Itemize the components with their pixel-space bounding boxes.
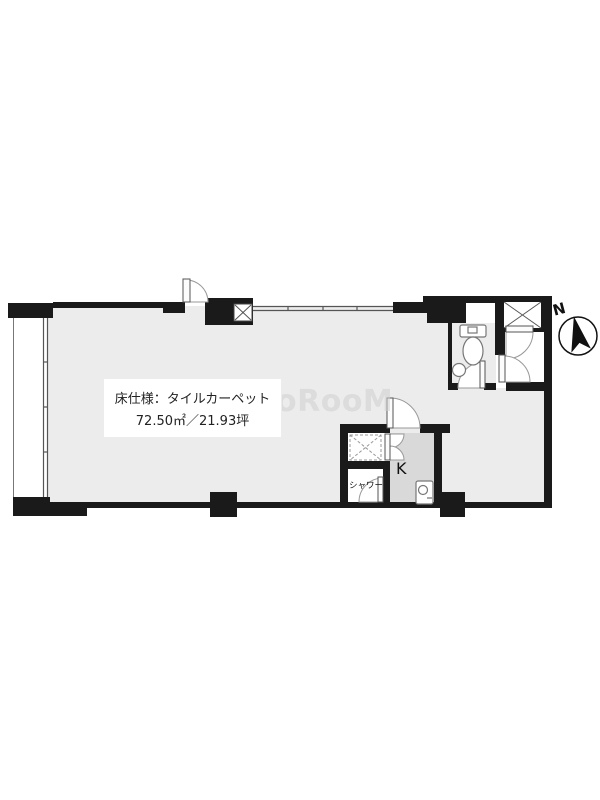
wall-right — [544, 296, 552, 508]
pillar-bottom-right — [440, 492, 465, 517]
watermark: oRooM — [276, 384, 393, 419]
wall-top-a — [53, 302, 163, 308]
hall-door-leaf — [506, 326, 533, 332]
pillar-bottom-mid — [210, 492, 237, 517]
entrance-door-leaf — [183, 279, 190, 302]
wall-toilet-left — [448, 323, 452, 383]
floorplan-image: N oRooM 床仕様：タイルカーペット 72.50㎡／21.93坪 シャワー … — [0, 0, 600, 800]
toilet-sink-icon — [453, 364, 466, 377]
shower-room-label: シャワー — [346, 479, 386, 491]
wall-kitchen-right — [434, 424, 442, 508]
north-compass-icon: N — [551, 299, 597, 355]
kitchen-room-label: K — [396, 459, 407, 478]
toilet-door-leaf — [480, 361, 485, 388]
wall-top-b — [393, 302, 427, 313]
spec-floor-area: 72.50㎡／21.93坪 — [136, 410, 249, 429]
wall-kitchen-top-a — [340, 424, 390, 433]
spec-label-box: 床仕様：タイルカーペット 72.50㎡／21.93坪 — [103, 378, 282, 438]
toilet-bowl-icon — [463, 337, 483, 365]
hall-exit-door-leaf — [499, 355, 505, 382]
wall-top-left-corner — [8, 303, 53, 318]
north-label: N — [551, 299, 568, 320]
wall-kitchen-left — [340, 424, 348, 508]
wall-shower-top — [348, 461, 383, 469]
wall-toilet-step — [427, 302, 466, 323]
spec-floor-material: 床仕様：タイルカーペット — [115, 388, 271, 407]
wall-top-step — [163, 302, 185, 313]
wall-bottom-left-block — [13, 497, 50, 516]
wall-bottom — [85, 502, 552, 508]
main-room-floor-right — [448, 388, 544, 504]
closet-door-leaf — [385, 434, 390, 460]
